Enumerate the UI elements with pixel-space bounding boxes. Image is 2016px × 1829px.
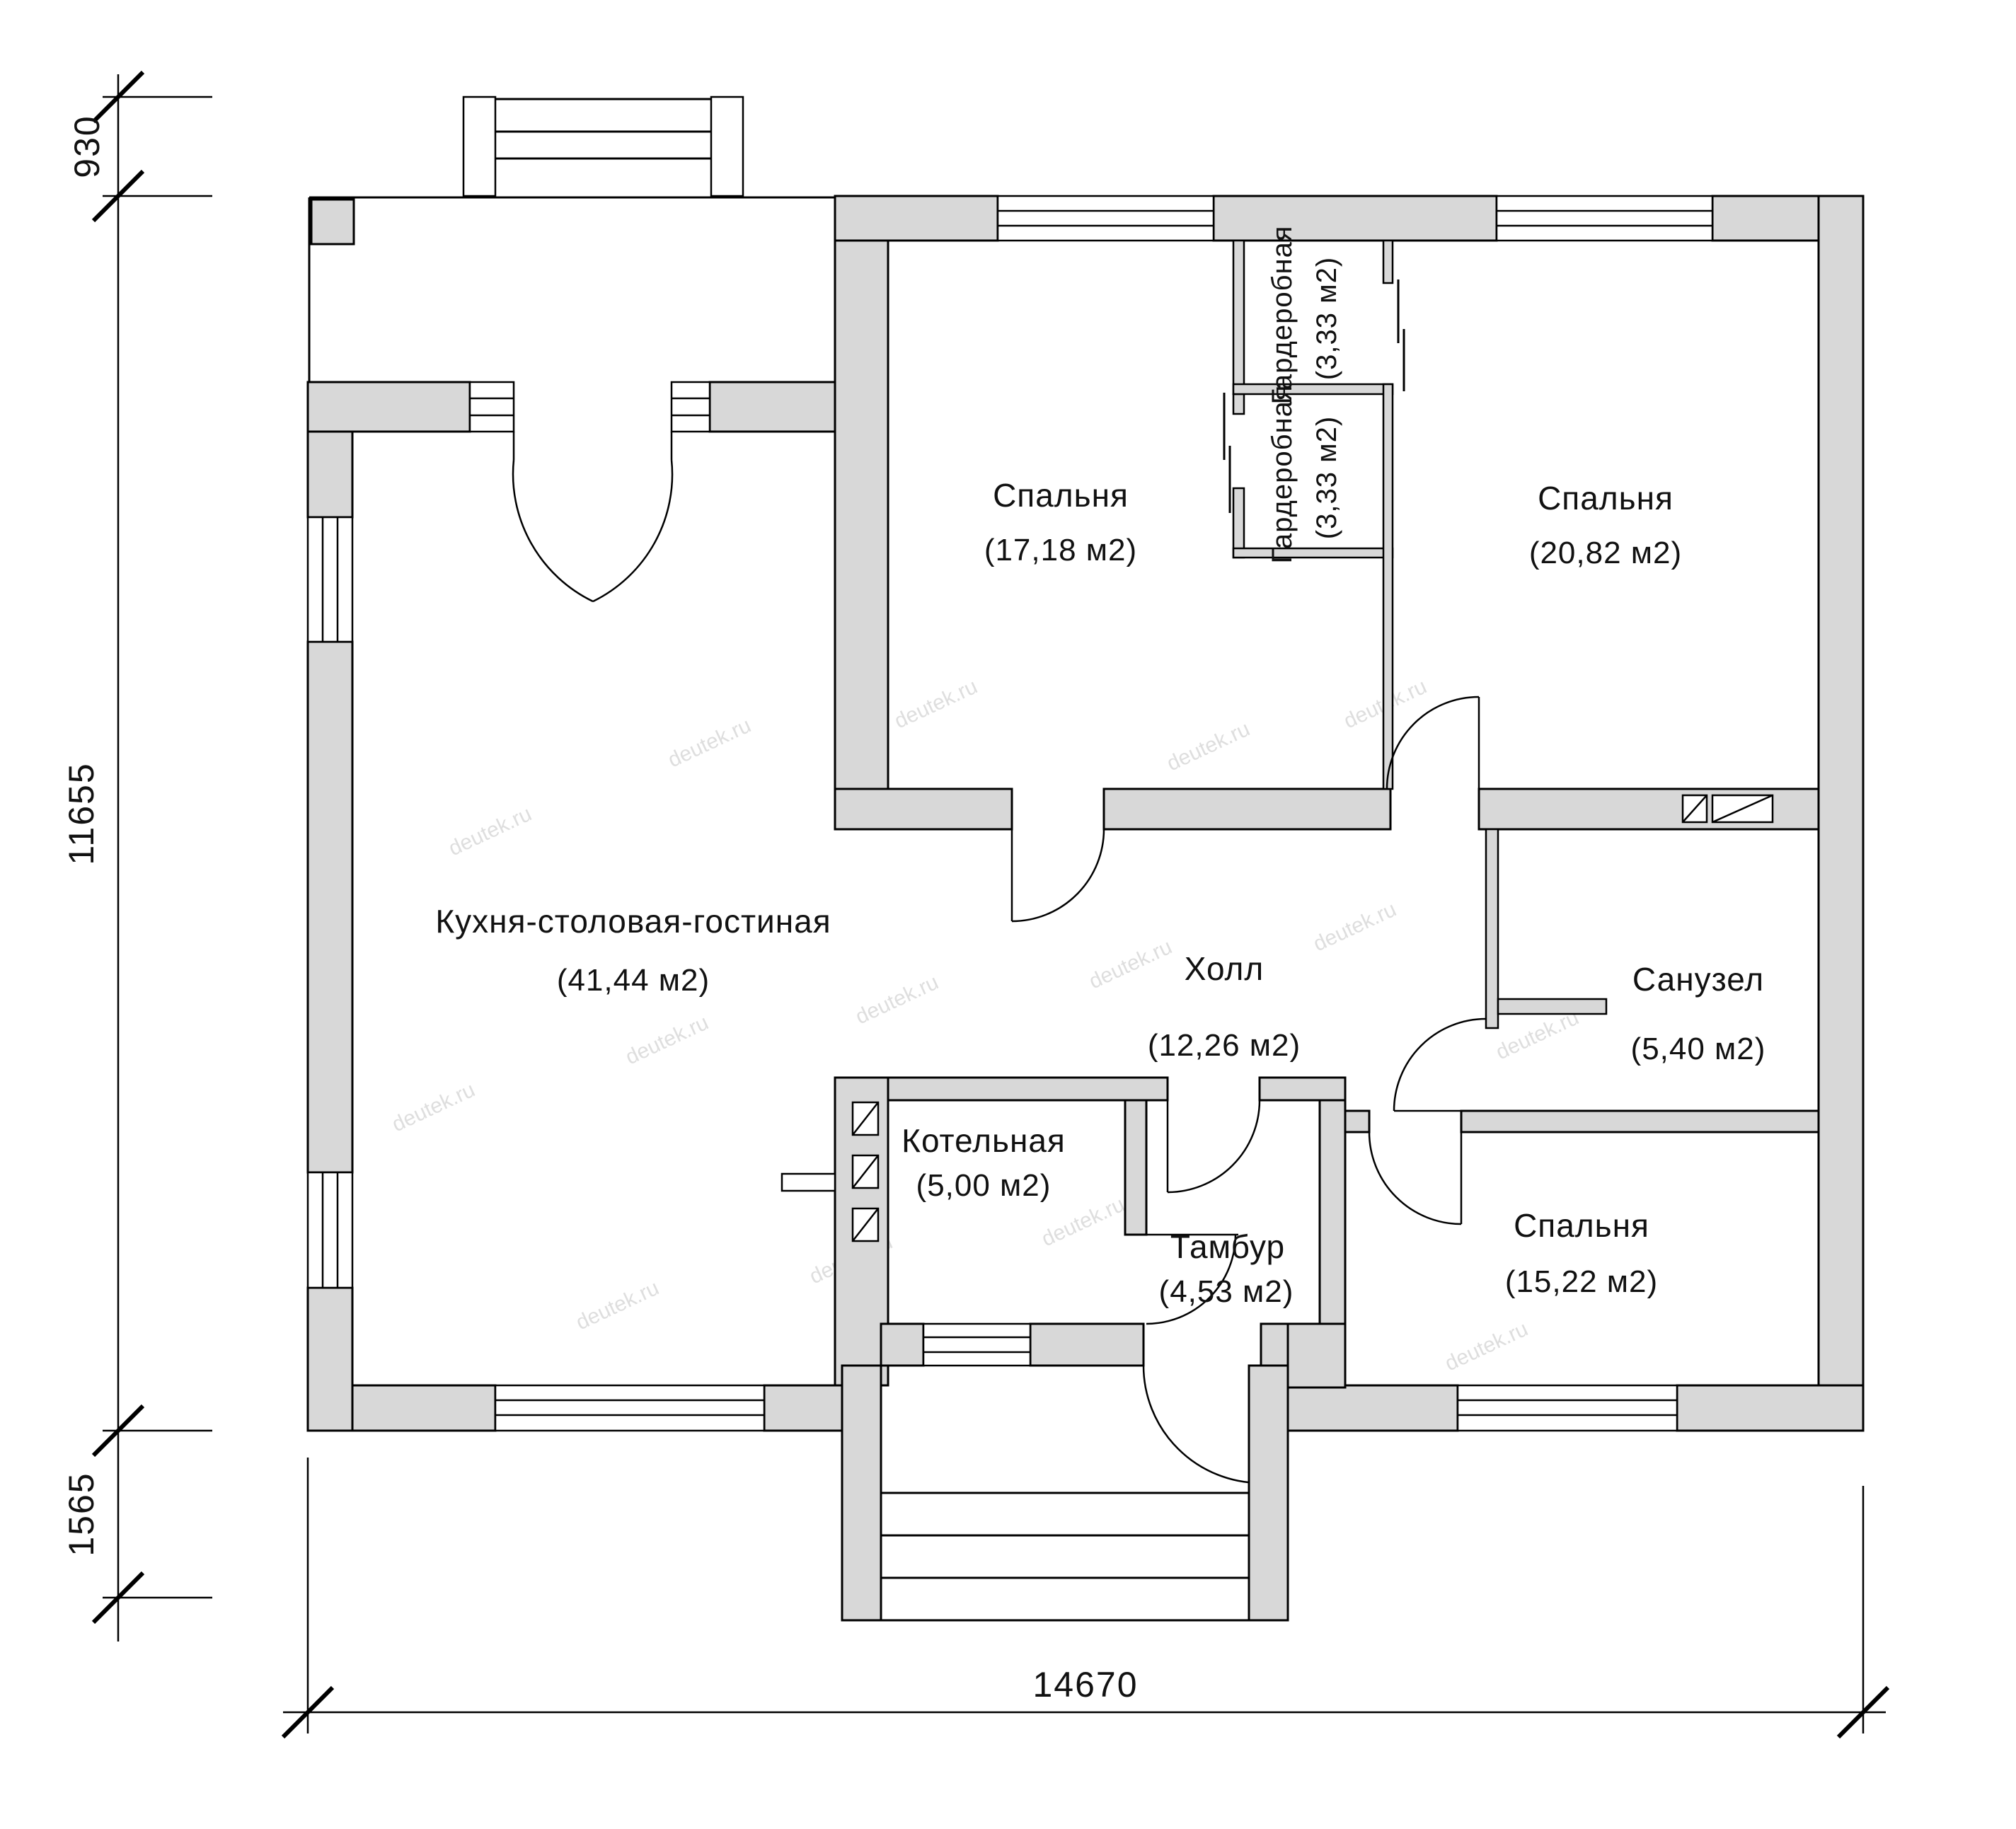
window-terrace-right	[672, 382, 710, 432]
dim-11655: 11655	[62, 762, 101, 865]
dim-14670: 14670	[1032, 1665, 1138, 1704]
wall-kitchen-east	[835, 241, 888, 829]
wall-bedroom3-north	[1345, 1111, 1369, 1132]
wall-top	[1214, 196, 1497, 241]
label-wardrobe1-area: (3,33 м2)	[1311, 257, 1342, 380]
label-boiler-area: (5,00 м2)	[916, 1168, 1052, 1203]
porch-wall-left	[842, 1366, 881, 1620]
wall-corner-patch	[1288, 1324, 1345, 1387]
wall-south-center	[1030, 1324, 1144, 1366]
label-bathroom-area: (5,40 м2)	[1631, 1032, 1766, 1066]
watermark: deutek.ru	[572, 1276, 662, 1335]
terrace	[309, 197, 836, 383]
dim-1565: 1565	[62, 1472, 101, 1556]
sliding-door-wardrobe1[interactable]	[1398, 279, 1404, 391]
wall-top	[835, 196, 998, 241]
label-kitchen-name: Кухня-столовая-гостиная	[435, 903, 831, 940]
label-bathroom-name: Санузел	[1632, 961, 1764, 998]
watermark: deutek.ru	[622, 1011, 712, 1070]
wall-boiler-north	[888, 1078, 1168, 1100]
french-door-terrace[interactable]	[513, 432, 672, 601]
room-labels: Кухня-столовая-гостиная (41,44 м2) Спаль…	[435, 226, 1766, 1309]
watermark: deutek.ru	[388, 1078, 478, 1137]
label-vestibule-area: (4,53 м2)	[1159, 1274, 1294, 1309]
window-terrace-left	[470, 382, 514, 432]
door-bedroom3[interactable]	[1369, 1132, 1461, 1224]
door-vestibule[interactable]	[1168, 1100, 1260, 1192]
label-bedroom3-area: (15,22 м2)	[1505, 1264, 1658, 1299]
bathroom-stub-wall	[1498, 999, 1606, 1014]
label-kitchen-area: (41,44 м2)	[557, 963, 710, 998]
wall-kitchen-top	[308, 382, 470, 432]
wall-hall-north	[1104, 789, 1390, 829]
vent-ducts-bathroom	[1683, 795, 1773, 822]
watermark: deutek.ru	[1085, 935, 1175, 994]
floor-plan: deutek.ru deutek.ru deutek.ru deutek.ru …	[0, 0, 2016, 1829]
wall-bottom-right	[1677, 1385, 1863, 1431]
sliding-door-wardrobe2[interactable]	[1224, 393, 1230, 513]
watermarks: deutek.ru deutek.ru deutek.ru deutek.ru …	[388, 675, 1582, 1376]
door-bathroom[interactable]	[1394, 1019, 1486, 1111]
stairs-rail-left	[463, 97, 495, 196]
label-hall-name: Холл	[1185, 950, 1264, 987]
label-wardrobe1-name: Гардеробная	[1267, 226, 1298, 405]
watermark: deutek.ru	[1163, 717, 1253, 776]
wall-wardrobe-south	[1233, 548, 1393, 558]
window-kitchen-left-upper	[308, 517, 352, 642]
label-wardrobe2-area: (3,33 м2)	[1311, 416, 1342, 539]
window-bedroom2-top	[1497, 196, 1712, 241]
wall-bottom-right	[1288, 1385, 1458, 1431]
stairs-rail-right	[711, 97, 743, 196]
watermark: deutek.ru	[1038, 1193, 1128, 1252]
wall-wardrobe-west	[1233, 394, 1244, 414]
wall-wardrobe-west	[1233, 241, 1244, 394]
entrance-porch	[842, 1366, 1288, 1620]
wall-wardrobe-divider	[1233, 384, 1393, 394]
window-bedroom3-bottom	[1458, 1385, 1677, 1431]
watermark: deutek.ru	[1310, 898, 1400, 957]
label-wardrobe2-name: Гардеробная	[1267, 385, 1298, 564]
watermark: deutek.ru	[1441, 1317, 1531, 1376]
label-bedroom2-area: (20,82 м2)	[1529, 536, 1682, 570]
window-kitchen-bottom	[495, 1385, 764, 1431]
window-kitchen-left-lower	[308, 1172, 352, 1288]
wall-vestibule-west	[1125, 1100, 1146, 1235]
wall-bathroom-west	[1486, 829, 1498, 1028]
door-bedroom1[interactable]	[1012, 829, 1104, 921]
window-bedroom1-top	[998, 196, 1214, 241]
wall-wardrobe-west	[1233, 488, 1244, 558]
wall-hall-north	[835, 789, 1012, 829]
watermark: deutek.ru	[852, 971, 942, 1029]
wall-south-center	[881, 1324, 923, 1366]
terrace-column	[311, 200, 354, 244]
label-bedroom1-area: (17,18 м2)	[984, 533, 1137, 567]
wall-south-center	[1261, 1324, 1288, 1366]
boiler-flues	[853, 1102, 878, 1241]
watermark: deutek.ru	[445, 802, 535, 861]
wall-right	[1819, 196, 1863, 1431]
interior-walls	[782, 241, 1819, 1387]
wall-bathroom-south	[1461, 1111, 1819, 1132]
wall-left	[308, 1288, 352, 1431]
porch-wall-right	[1249, 1366, 1288, 1620]
label-bedroom2-name: Спальня	[1538, 480, 1674, 517]
window-boiler	[923, 1324, 1030, 1366]
terrace-stairs	[463, 97, 743, 196]
label-vestibule-name: Тамбур	[1170, 1228, 1285, 1265]
label-bedroom1-name: Спальня	[993, 477, 1129, 514]
wall-vestibule-north	[1260, 1078, 1345, 1100]
door-entrance[interactable]	[1144, 1366, 1261, 1483]
wall-wardrobe-east	[1383, 384, 1393, 789]
kitchen-wall-stub	[782, 1174, 835, 1191]
dim-930: 930	[67, 115, 107, 178]
watermark: deutek.ru	[664, 714, 754, 773]
wall-left	[308, 642, 352, 1172]
watermark: deutek.ru	[891, 675, 981, 734]
label-bedroom3-name: Спальня	[1514, 1207, 1649, 1244]
door-bedroom2[interactable]	[1387, 697, 1479, 789]
label-hall-area: (12,26 м2)	[1148, 1028, 1301, 1063]
wall-wardrobe-east	[1383, 241, 1393, 283]
label-boiler-name: Котельная	[902, 1122, 1066, 1159]
